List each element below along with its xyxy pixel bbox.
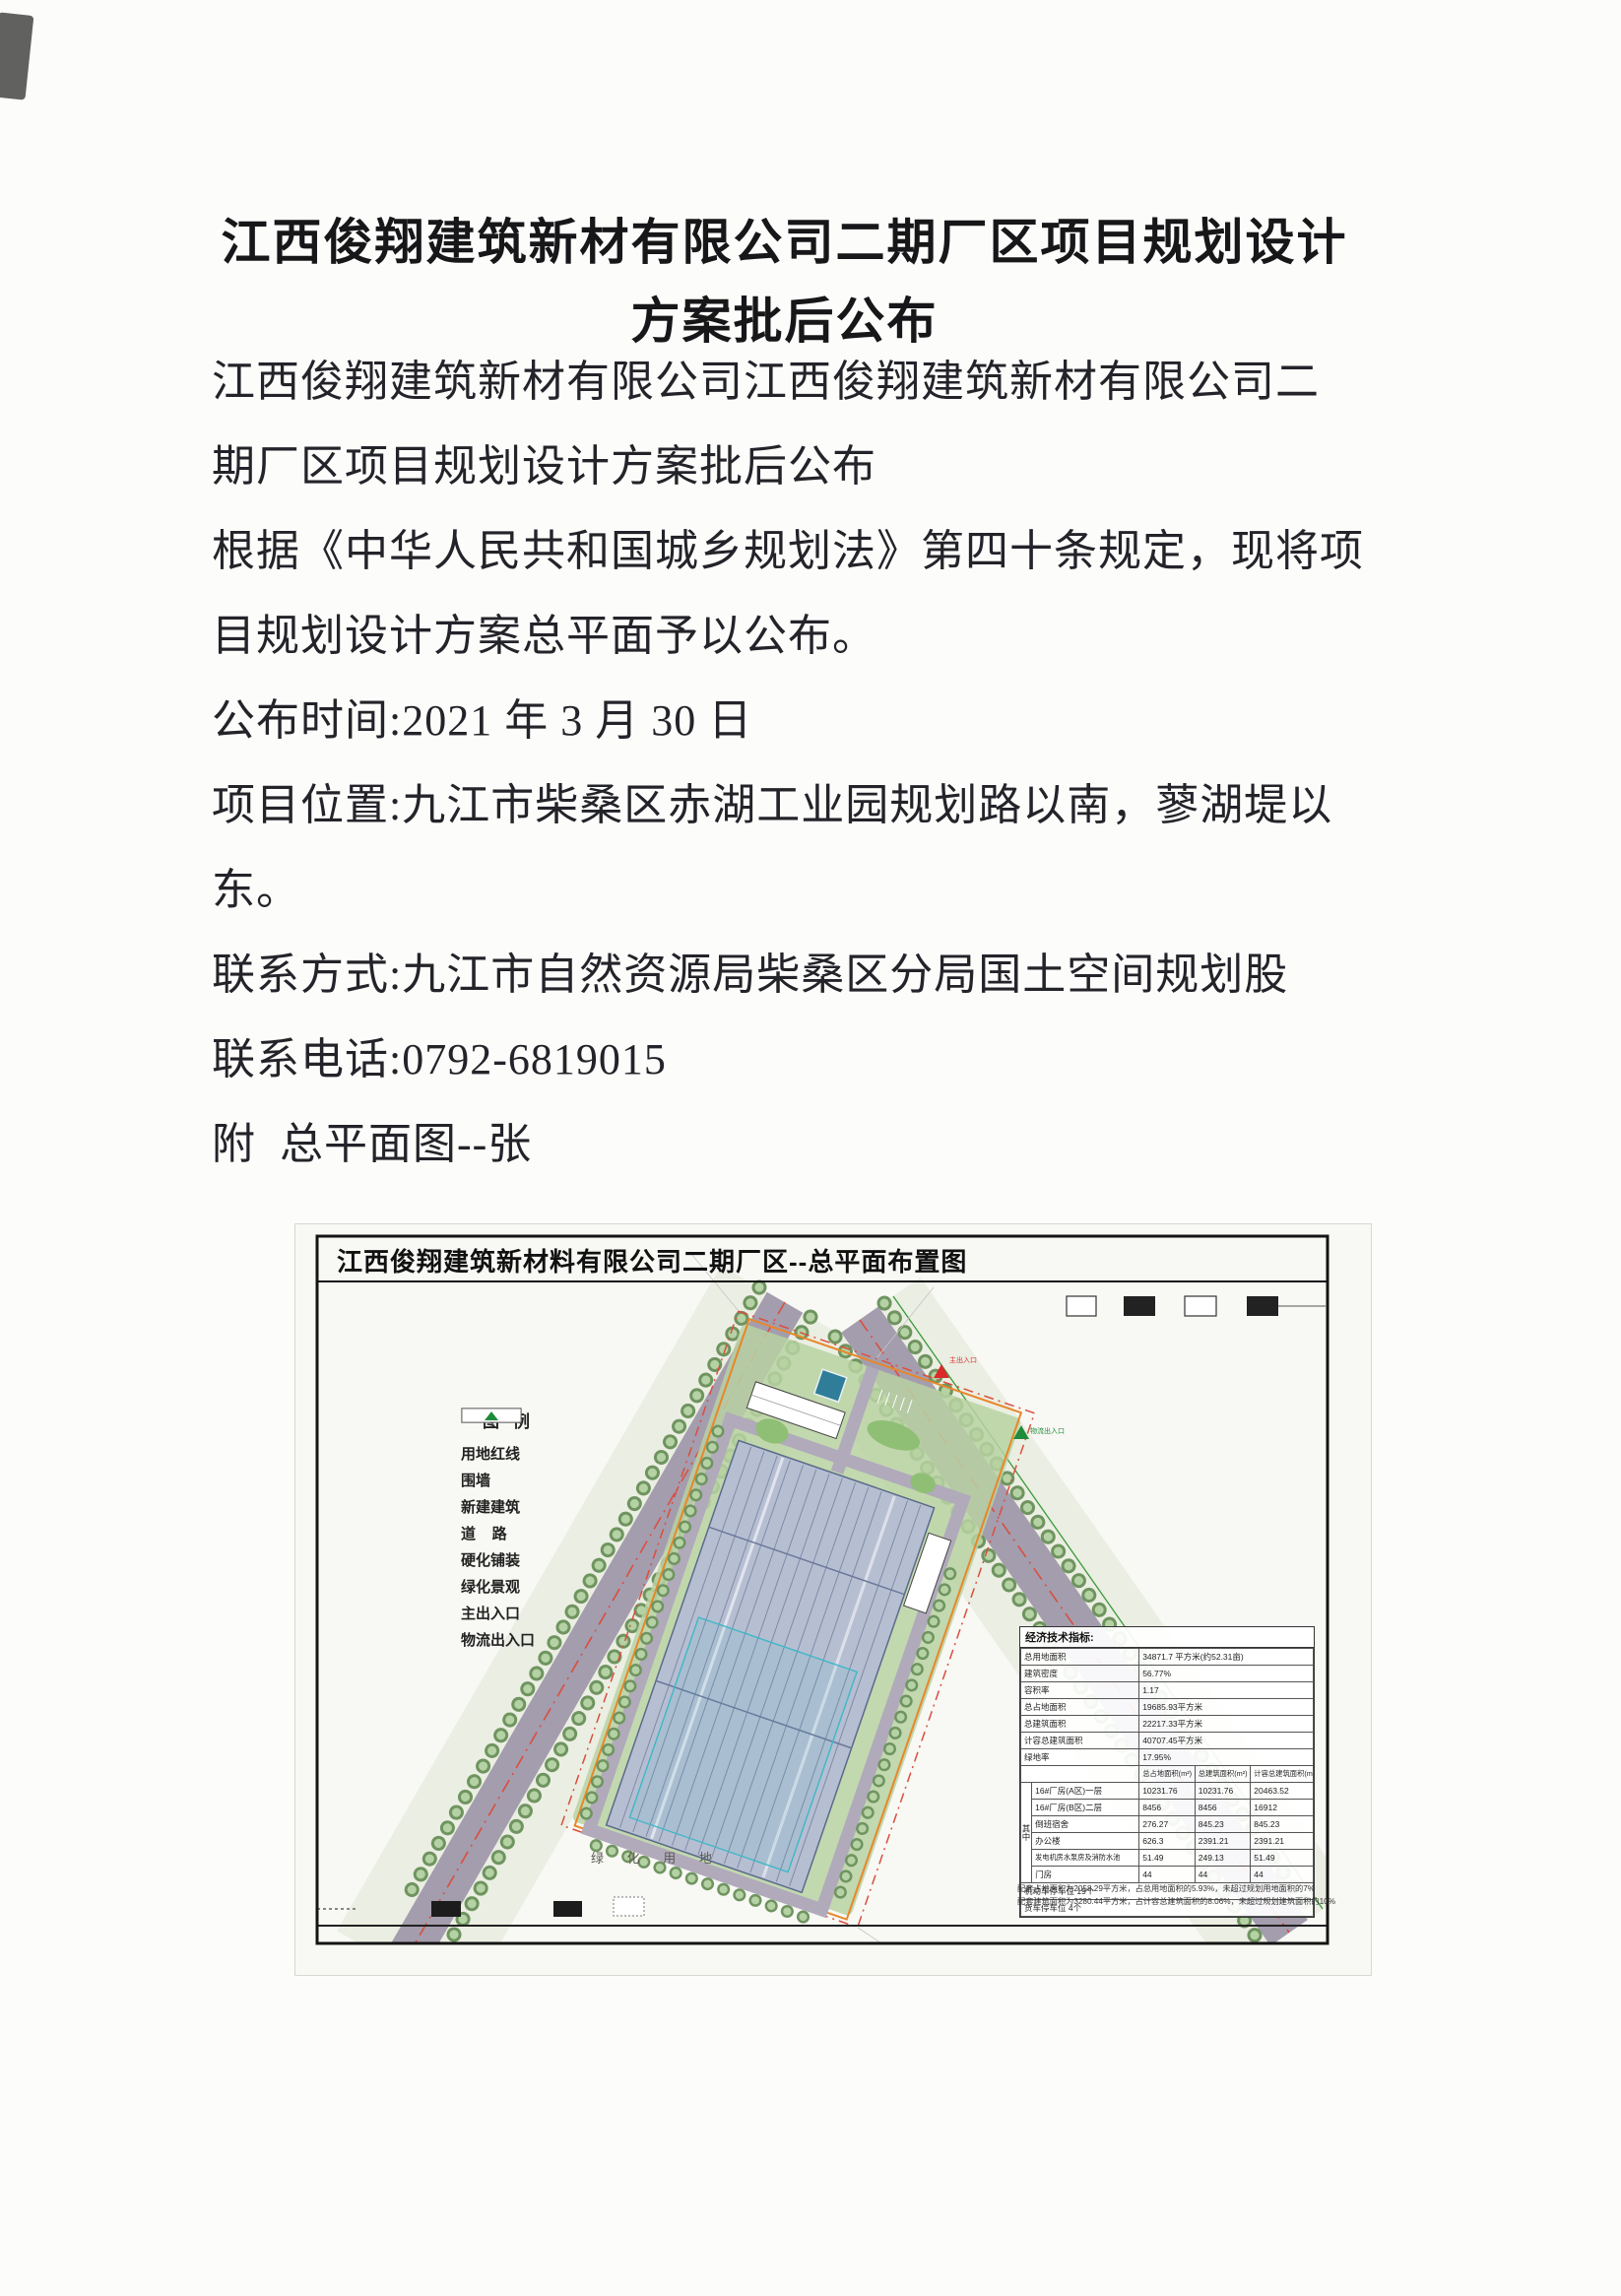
paragraph-line: 附 总平面图--张 <box>212 1119 1394 1170</box>
legend-item-redline: 用地红线 <box>461 1440 648 1467</box>
legend-label: 道 路 <box>461 1523 507 1543</box>
note-line: 配套建筑面积为3280.44平方米，占计容总建筑面积的8.06%，未超过规划建筑… <box>1017 1895 1362 1908</box>
legend-label: 主出入口 <box>461 1603 520 1623</box>
table-header-row: 总占地面积(m²) 总建筑面积(m²) 计容总建筑面积(m²) <box>1021 1766 1314 1783</box>
legend-item-wall: 围墙 <box>461 1467 648 1493</box>
table-row: 倒班宿舍 276.27 845.23 845.23 <box>1021 1816 1314 1833</box>
scan-artifact <box>0 12 33 99</box>
table-row: 其中 16#厂房(A区)一层 10231.76 10231.76 20463.5… <box>1021 1783 1314 1800</box>
legend-label: 新建建筑 <box>461 1496 520 1517</box>
indicators-title: 经济技术指标: <box>1020 1627 1314 1648</box>
plan-title: 江西俊翔建筑新材料有限公司二期厂区--总平面布置图 <box>337 1242 1322 1279</box>
table-row: 容积率1.17 <box>1021 1682 1314 1699</box>
logistics-entrance-label: 物流出入口 <box>1030 1426 1065 1435</box>
document-title-line2: 方案批后公布 <box>212 282 1357 361</box>
indicators-notes: 配套占地面积为2058.29平方米，占总用地面积的5.93%，未超过规划用地面积… <box>1017 1882 1362 1908</box>
legend-item-road: 道 路 <box>461 1520 648 1546</box>
legend-item-logistics-entrance: 物流出入口 <box>461 1626 648 1653</box>
paragraph-line: 公布时间:2021 年 3 月 30 日 <box>212 695 1394 747</box>
legend-label: 绿化景观 <box>461 1576 520 1597</box>
indicators-table: 经济技术指标: 总用地面积34871.7 平方米(约52.31亩) 建筑密度56… <box>1019 1626 1315 1918</box>
table-row: 建筑密度56.77% <box>1021 1666 1314 1682</box>
table-row: 总建筑面积22217.33平方米 <box>1021 1716 1314 1733</box>
site-plan-sheet: 主出入口 物流出入口 绿 化 用 地 <box>295 1224 1371 1975</box>
logistics-entrance-icon: 物流出入口 <box>1013 1425 1065 1439</box>
green-area-label: 绿 化 用 地 <box>591 1851 722 1866</box>
document-title: 江西俊翔建筑新材有限公司二期厂区项目规划设计 方案批后公布 <box>212 203 1357 361</box>
legend-label: 用地红线 <box>461 1443 520 1464</box>
table-row: 总占地面积19685.93平方米 <box>1021 1699 1314 1716</box>
paragraph-line: 根据《中华人民共和国城乡规划法》第四十条规定，现将项 <box>212 526 1394 577</box>
main-entrance-label: 主出入口 <box>949 1355 977 1364</box>
paragraph-line: 江西俊翔建筑新材有限公司江西俊翔建筑新材有限公司二 <box>212 357 1394 408</box>
table-row: 计容总建筑面积40707.45平方米 <box>1021 1733 1314 1749</box>
reference-boxes <box>1067 1296 1326 1316</box>
table-row: 绿地率17.95% <box>1021 1749 1314 1766</box>
legend-item-main-entrance: 主出入口 <box>461 1600 648 1626</box>
legend-item-paving: 硬化铺装 <box>461 1546 648 1573</box>
paragraph-line: 期厂区项目规划设计方案批后公布 <box>212 441 1394 492</box>
table-row: 总用地面积34871.7 平方米(约52.31亩) <box>1021 1649 1314 1666</box>
plan-legend: 图例 用地红线 围墙 <box>461 1408 648 1653</box>
scanned-document-page: 江西俊翔建筑新材有限公司二期厂区项目规划设计 方案批后公布 江西俊翔建筑新材有限… <box>0 0 1621 2296</box>
paragraph-line: 项目位置:九江市柴桑区赤湖工业园规划路以南，蓼湖堤以 <box>212 780 1394 831</box>
legend-item-greenery: 绿化景观 <box>461 1573 648 1600</box>
table-row: 发电机房水泵房及消防水池 51.49 249.13 51.49 <box>1021 1850 1314 1867</box>
table-row: 16#厂房(B区)二层 8456 8456 16912 <box>1021 1800 1314 1816</box>
legend-label: 围墙 <box>461 1470 490 1490</box>
paragraph-line: 东。 <box>212 865 1394 916</box>
logistics-entrance-legend-icon <box>461 1408 522 1423</box>
legend-label: 物流出入口 <box>461 1629 535 1650</box>
paragraph-line: 目规划设计方案总平面予以公布。 <box>212 611 1394 662</box>
paragraph-line: 联系方式:九江市自然资源局柴桑区分局国土空间规划股 <box>212 950 1394 1001</box>
paragraph-line: 联系电话:0792-6819015 <box>212 1034 1394 1085</box>
table-row: 办公楼 626.3 2391.21 2391.21 <box>1021 1833 1314 1850</box>
note-line: 配套占地面积为2058.29平方米，占总用地面积的5.93%，未超过规划用地面积… <box>1017 1882 1362 1895</box>
legend-label: 硬化铺装 <box>461 1549 520 1570</box>
document-title-line1: 江西俊翔建筑新材有限公司二期厂区项目规划设计 <box>212 203 1357 282</box>
group-label: 其中 <box>1021 1783 1032 1883</box>
legend-item-new-building: 新建建筑 <box>461 1493 648 1520</box>
table-row: 门房 44 44 44 <box>1021 1867 1314 1883</box>
